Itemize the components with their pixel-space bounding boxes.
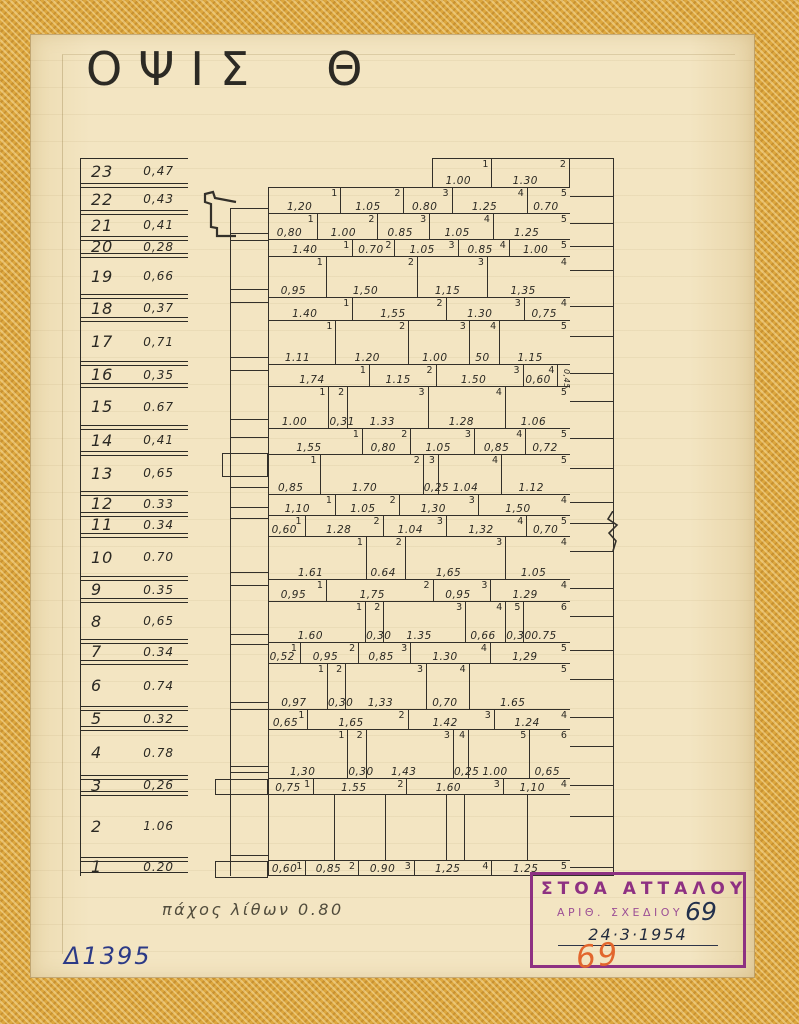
course-row: 10,9720,3031,3340,7051.65 xyxy=(268,664,570,710)
stone-block: 10,75 xyxy=(269,779,314,794)
stone-block: 11.00 xyxy=(269,387,329,428)
block-group: 11.0021.30 xyxy=(432,158,570,187)
block-number: 1 xyxy=(311,455,317,466)
block-width-value: 0,70 xyxy=(527,525,564,536)
block-width-value: 1,74 xyxy=(269,375,355,386)
course-number: 12 xyxy=(91,494,113,513)
block-number: 1 xyxy=(343,240,349,251)
stone-block: 31.50 xyxy=(437,365,524,386)
block-width-value: 1.50 xyxy=(437,375,511,386)
left-anta-profile xyxy=(230,208,268,876)
block-number: 4 xyxy=(517,516,523,527)
stone-block: 21,50 xyxy=(327,257,418,297)
block-number: 5 xyxy=(561,643,567,654)
block-number: 2 xyxy=(336,664,342,675)
course-row: 11.0020,3131.3341.2851.06 xyxy=(268,387,570,429)
block-width-value: 0.85 xyxy=(378,228,422,239)
course-table-row: 170,71 xyxy=(81,321,188,362)
stone-block: 20,30 xyxy=(366,602,384,642)
course-height: 0.74 xyxy=(143,679,178,693)
stone-block: 31.60 xyxy=(407,779,503,794)
block-number: 3 xyxy=(437,516,443,527)
course-number: 20 xyxy=(91,237,113,256)
anta-joint-line xyxy=(570,246,613,247)
stone-block: 40,25 xyxy=(454,730,469,778)
stone-block: 10,65 xyxy=(269,710,308,729)
course-number: 13 xyxy=(91,464,113,483)
block-number: 4 xyxy=(490,321,496,332)
block-number: 4 xyxy=(459,730,465,741)
block-number: 1 xyxy=(357,537,363,548)
stone-block: 41.28 xyxy=(429,387,506,428)
stone-block: 11,30 xyxy=(269,730,348,778)
stone-block: 21.05 xyxy=(341,188,404,213)
stone-block: 30.80 xyxy=(404,188,452,213)
course-height: 0,66 xyxy=(143,269,178,283)
stone-block: 21.15 xyxy=(370,365,437,386)
stone-block: 20,30 xyxy=(328,664,346,709)
stone-block: 21.30 xyxy=(492,159,569,187)
anta-joint-line xyxy=(570,270,613,271)
course-height: 0,41 xyxy=(143,433,178,447)
stone-block: 41,32 xyxy=(447,516,527,536)
stone-block: 40,85 xyxy=(475,429,526,454)
block-number: 3 xyxy=(515,298,521,309)
stone-block: 11.11 xyxy=(269,321,336,364)
block-number: 1 xyxy=(326,321,332,332)
block-width-value: 1.28 xyxy=(429,417,495,428)
stone-block: 30.85 xyxy=(378,214,430,239)
course-number: 17 xyxy=(91,332,113,351)
stone-block: 40.85 xyxy=(459,240,510,256)
block-width-value: 1.00 xyxy=(433,176,483,187)
block-number: 2 xyxy=(399,321,405,332)
stone-block: 51.15 xyxy=(500,321,570,364)
block-number: 3 xyxy=(429,455,435,466)
course-number: 7 xyxy=(91,642,102,661)
stone-block: 10,95 xyxy=(269,257,327,297)
block-width-value: 0,30 xyxy=(348,767,363,778)
stone-block: 30,95 xyxy=(434,580,492,601)
block-width-value: 1.05 xyxy=(395,245,449,256)
stone-block: 11,55 xyxy=(269,429,363,454)
block-width-value: 0,60 xyxy=(524,375,553,386)
block-number: 2 xyxy=(396,537,402,548)
course-table-row: 30,26 xyxy=(81,779,188,792)
block-number: 3 xyxy=(417,664,423,675)
block-width-value: 1.15 xyxy=(370,375,427,386)
anta-joint-line xyxy=(570,223,613,224)
anta-joint-line xyxy=(570,867,613,868)
stone-block: 20,85 xyxy=(306,861,359,875)
anta-joint-line xyxy=(231,507,268,508)
course-table-row: 90.35 xyxy=(81,580,188,599)
block-number: 3 xyxy=(456,602,462,613)
stone-block: 11,10 xyxy=(269,495,336,515)
course-row xyxy=(268,795,570,861)
block-width-value: 1.33 xyxy=(348,417,416,428)
stone-block xyxy=(335,795,386,860)
block-width-value: 1.05 xyxy=(506,568,561,579)
scanned-drawing-sheet: { "title": "ΟΨΙΣ Θ", "notes": { "thickne… xyxy=(0,0,799,1024)
stamp-drawing-number: 69 xyxy=(685,901,717,924)
block-number: 2 xyxy=(373,516,379,527)
course-table-row: 230,47 xyxy=(81,158,188,184)
stone-block: 11.40 xyxy=(269,240,353,256)
stone-block: 21.05 xyxy=(336,495,400,515)
stone-block: 50,30 xyxy=(506,602,524,642)
block-width-value: 1.28 xyxy=(306,525,372,536)
anta-joint-line xyxy=(570,336,613,337)
block-number: 4 xyxy=(496,602,502,613)
block-width-value: 1.00 xyxy=(269,417,320,428)
block-width-value: 1,32 xyxy=(447,525,515,536)
course-offset-spacer xyxy=(268,158,432,187)
block-number: 3 xyxy=(419,387,425,398)
stone-block: 20.70 xyxy=(353,240,395,256)
block-width-value: 0,85 xyxy=(475,443,518,454)
stone-block: 41.29 xyxy=(491,580,570,601)
course-table-row: 140,41 xyxy=(81,429,188,452)
block-number: 4 xyxy=(561,537,567,548)
anta-joint-line xyxy=(570,785,613,786)
block-number: 4 xyxy=(460,664,466,675)
block-width-value: 1.25 xyxy=(494,228,559,239)
course-row: 10,5220,9530,8541.3051,29 xyxy=(268,643,570,664)
block-number: 2 xyxy=(414,455,420,466)
stone-block: 11.61 xyxy=(269,537,367,580)
stone-block: 20,31 xyxy=(329,387,348,428)
block-width-value: 1.40 xyxy=(269,309,341,320)
block-number: 3 xyxy=(496,537,502,548)
anta-joint-line xyxy=(231,518,268,519)
block-number: 4 xyxy=(492,455,498,466)
anta-joint-line xyxy=(231,702,268,703)
archive-ref-number: Δ1395 xyxy=(64,942,152,970)
block-number: 1 xyxy=(326,495,332,506)
anta-joint-line xyxy=(231,709,268,710)
course-number: 16 xyxy=(91,365,113,384)
stone-block: 40,60 xyxy=(524,365,559,386)
stone-block: 41,35 xyxy=(488,257,570,297)
block-width-value: 1.24 xyxy=(495,718,560,729)
course-number: 22 xyxy=(91,190,113,209)
anta-joint-line xyxy=(231,419,268,420)
stoa-attalou-stamp: ΣΤΟΑ ΑΤΤΑΛΟΥ ΑΡΙΘ. ΣΧΕΔΙΟΥ 69 24·3·1954 xyxy=(530,872,746,968)
block-number: 3 xyxy=(485,710,491,721)
block-width-value: 1.30 xyxy=(447,309,513,320)
course-row: 11,5520,8031.0540,8550,72 xyxy=(268,429,570,455)
course-number: 3 xyxy=(91,776,102,795)
block-width-value: 0,65 xyxy=(269,718,302,729)
anta-protruding-block xyxy=(215,779,268,795)
stone-block: 31.00 xyxy=(409,321,470,364)
block-width-value: 1.35 xyxy=(384,631,454,642)
course-table-row: 80,65 xyxy=(81,602,188,640)
course-table-row: 40.78 xyxy=(81,730,188,776)
course-height: 0,47 xyxy=(143,164,178,178)
block-number: 2 xyxy=(397,779,403,790)
block-number: 2 xyxy=(368,214,374,225)
stone-block: 51.06 xyxy=(506,387,570,428)
stone-block: 41.05 xyxy=(430,214,494,239)
block-number: 2 xyxy=(401,429,407,440)
block-number: 1 xyxy=(319,387,325,398)
anta-protruding-block xyxy=(222,453,268,477)
course-row: 10,7521.5531.6041,10 xyxy=(268,779,570,795)
course-row: 11.4021,5531.3040,75 xyxy=(268,298,570,321)
block-width-value: 1.00 xyxy=(318,228,369,239)
course-height: 0.78 xyxy=(143,746,178,760)
stone-block: 41.24 xyxy=(495,710,570,729)
course-table-row: 50.32 xyxy=(81,710,188,727)
stone-block xyxy=(447,795,465,860)
anta-joint-line xyxy=(231,437,268,438)
block-number: 4 xyxy=(484,214,490,225)
course-height: 0.34 xyxy=(143,645,178,659)
stone-block: 20.64 xyxy=(367,537,406,580)
block-number: 4 xyxy=(561,298,567,309)
block-width-value: 0,70 xyxy=(427,698,463,709)
block-width-value: 0,30 xyxy=(366,631,381,642)
course-number: 2 xyxy=(91,817,102,836)
block-number: 2 xyxy=(357,730,363,741)
block-width-value: 1.65 xyxy=(470,698,556,709)
stone-block: 30,85 xyxy=(359,643,411,663)
course-height: 1.06 xyxy=(143,819,178,833)
block-number: 4 xyxy=(561,495,567,506)
anta-joint-line xyxy=(231,302,268,303)
block-width-value: 0,25 xyxy=(424,483,436,494)
anta-joint-line xyxy=(231,772,268,773)
block-number: 1 xyxy=(353,429,359,440)
course-table-row: 180,37 xyxy=(81,298,188,318)
anta-joint-line xyxy=(231,357,268,358)
anta-joint-line xyxy=(570,616,613,617)
stone-block: 50,72 xyxy=(526,429,570,454)
block-number: 4 xyxy=(516,429,522,440)
block-width-value: 1.12 xyxy=(502,483,560,494)
stone-block: 11.40 xyxy=(269,298,353,320)
block-width-value: 1,43 xyxy=(367,767,441,778)
block-width-value: 1,50 xyxy=(327,286,405,297)
anta-joint-line xyxy=(570,746,613,747)
block-width-value: 1.00 xyxy=(469,767,521,778)
block-width-value: 1.60 xyxy=(269,631,352,642)
block-number: 5 xyxy=(561,429,567,440)
stone-block: 21.28 xyxy=(306,516,384,536)
stone-block: 11.60 xyxy=(269,602,366,642)
drawing-title: ΟΨΙΣ Θ xyxy=(86,42,379,96)
anta-joint-line xyxy=(570,306,613,307)
course-height: 0,41 xyxy=(143,218,178,232)
course-number: 19 xyxy=(91,267,113,286)
stone-block: 10,60 xyxy=(269,516,306,536)
block-number: 1 xyxy=(360,365,366,376)
stone-block xyxy=(465,795,528,860)
anta-joint-line xyxy=(570,438,613,439)
block-width-value: 0.85 xyxy=(459,245,502,256)
stone-block: 31.42 xyxy=(409,710,495,729)
block-width-value: 1,75 xyxy=(327,590,418,601)
block-number: 4 xyxy=(561,779,567,790)
anta-joint-line xyxy=(231,855,268,856)
stone-block: 31.05 xyxy=(395,240,458,256)
block-number: 1 xyxy=(343,298,349,309)
block-number: 6 xyxy=(561,602,567,613)
stone-block xyxy=(386,795,446,860)
block-width-value: 0,60 xyxy=(269,864,300,875)
block-width-value: 1.15 xyxy=(500,353,560,364)
stone-block: 21.20 xyxy=(336,321,409,364)
block-width-value: 1.05 xyxy=(336,504,390,515)
block-width-value: 0,75 xyxy=(525,309,564,320)
block-number: 6 xyxy=(561,730,567,741)
stone-block: 60.75 xyxy=(524,602,570,642)
course-row: 10,6021.2831.0441,3250,70 xyxy=(268,516,570,537)
anta-joint-line xyxy=(570,196,613,197)
block-width-value: 0,65 xyxy=(530,767,564,778)
stone-block: 51.00 xyxy=(510,240,570,256)
block-width-value: 1.05 xyxy=(430,228,484,239)
stone-block: 21.00 xyxy=(318,214,379,239)
stone-block: 30.90 xyxy=(359,861,415,875)
stone-block: 51,29 xyxy=(491,643,570,663)
block-width-value: 1,30 xyxy=(400,504,467,515)
block-width-value: 0,95 xyxy=(269,590,318,601)
stone-block: 31,43 xyxy=(367,730,454,778)
course-number: 5 xyxy=(91,709,102,728)
course-row: 11.1121.2031.0045051.15 xyxy=(268,321,570,365)
stone-block: 51.00 xyxy=(469,730,530,778)
stone-block: 11,74 xyxy=(269,365,370,386)
course-table-row: 100.70 xyxy=(81,537,188,578)
course-table-row: 220,43 xyxy=(81,187,188,211)
anta-joint-line xyxy=(231,370,268,371)
course-row: 10,8521.7030,2541.0451.12 xyxy=(268,455,570,496)
block-width-value: 0.64 xyxy=(367,568,400,579)
stone-block: 20,95 xyxy=(301,643,359,663)
course-height: 0.34 xyxy=(143,518,178,532)
block-width-value: 1.06 xyxy=(506,417,561,428)
block-number: 4 xyxy=(482,861,488,872)
block-number: 3 xyxy=(449,240,455,251)
anta-joint-line xyxy=(570,679,613,680)
block-width-value: 1.04 xyxy=(439,483,492,494)
stone-block: 51.65 xyxy=(470,664,570,709)
block-width-value: 1.04 xyxy=(384,525,438,536)
course-row: 10,9521,7530,9541.29 xyxy=(268,580,570,602)
stone-block: 51.25 xyxy=(494,214,570,239)
anta-joint-line xyxy=(570,523,613,524)
block-width-value: 1,33 xyxy=(346,698,415,709)
block-number: 5 xyxy=(561,321,567,332)
course-height: 0.20 xyxy=(143,860,178,874)
block-number: 1 xyxy=(356,602,362,613)
block-number: 5 xyxy=(514,602,520,613)
course-table-row: 130,65 xyxy=(81,455,188,493)
stone-block: 10,95 xyxy=(269,580,327,601)
course-row: 10,8021.0030.8541.0551.25 xyxy=(268,214,570,240)
stone-block: 40,70 xyxy=(427,664,470,709)
block-number: 3 xyxy=(443,188,449,199)
block-width-value: 0,95 xyxy=(301,652,350,663)
stone-block xyxy=(528,795,570,860)
block-width-value: 1.00 xyxy=(510,245,562,256)
stone-block xyxy=(269,795,335,860)
course-row: 10,9521,5031,1541,35 xyxy=(268,257,570,298)
anta-joint-line xyxy=(570,816,613,817)
pencil-drawing-number: 69 xyxy=(574,936,621,976)
block-number: 2 xyxy=(394,188,400,199)
stone-block: 41.05 xyxy=(506,537,570,580)
anta-joint-line xyxy=(231,233,268,234)
block-width-value: 0,80 xyxy=(363,443,404,454)
block-width-value: 1.40 xyxy=(269,245,341,256)
block-number: 1 xyxy=(331,188,337,199)
stone-block: 31,33 xyxy=(346,664,427,709)
stone-block: 21.55 xyxy=(314,779,407,794)
course-row: 10,6521,6531.4241.24 xyxy=(268,710,570,730)
block-number: 3 xyxy=(460,321,466,332)
anta-joint-line xyxy=(231,766,268,767)
block-width-value: 0,85 xyxy=(359,652,403,663)
anta-joint-line xyxy=(231,585,268,586)
stone-thickness-note: πάχος λίθων 0.80 xyxy=(162,900,344,919)
block-width-value: 1,25 xyxy=(415,864,481,875)
stone-block: 31,30 xyxy=(400,495,479,515)
stone-block: 31.35 xyxy=(384,602,466,642)
block-number: 2 xyxy=(423,580,429,591)
stone-block: 450 xyxy=(470,321,500,364)
block-width-value: 1.05 xyxy=(341,202,395,213)
block-width-value: 0,30 xyxy=(506,631,521,642)
stone-block: 31,65 xyxy=(406,537,506,580)
block-number: 1 xyxy=(318,664,324,675)
block-width-value: 1,29 xyxy=(491,652,559,663)
stone-block: 60,65 xyxy=(530,730,570,778)
block-width-value: 1.11 xyxy=(269,353,326,364)
anta-joint-line xyxy=(231,240,268,241)
block-number: 4 xyxy=(496,387,502,398)
anta-joint-line xyxy=(231,644,268,645)
anta-joint-line xyxy=(231,572,268,573)
stone-block: 41,50 xyxy=(479,495,570,515)
block-number: 2 xyxy=(399,710,405,721)
block-number: 2 xyxy=(427,365,433,376)
stone-block: 11,20 xyxy=(269,188,341,213)
block-width-value: 1,15 xyxy=(418,286,477,297)
block-number: 4 xyxy=(561,257,567,268)
block-width-value: 0.70 xyxy=(353,245,388,256)
block-width-value: 1,30 xyxy=(269,767,336,778)
block-width-value: 1.05 xyxy=(411,443,465,454)
block-number: 5 xyxy=(561,455,567,466)
course-table-row: 60.74 xyxy=(81,664,188,707)
course-number: 11 xyxy=(91,515,113,534)
block-width-value: 0,75 xyxy=(269,783,307,794)
block-width-value: 0,31 xyxy=(329,417,344,428)
block-number: 3 xyxy=(420,214,426,225)
course-number: 15 xyxy=(91,397,113,416)
course-row: 11,7421.1531.5040,600,45 xyxy=(268,365,570,387)
course-height: 0,35 xyxy=(143,368,178,382)
block-number: 1 xyxy=(482,159,488,170)
block-width-value: 0,72 xyxy=(526,443,564,454)
course-number: 10 xyxy=(91,548,113,567)
stone-wall: 11.0021.3011,2021.0530.8041.2550.7010,80… xyxy=(268,158,570,876)
stamp-number-label: ΑΡΙΘ. ΣΧΕΔΙΟΥ xyxy=(541,906,683,919)
